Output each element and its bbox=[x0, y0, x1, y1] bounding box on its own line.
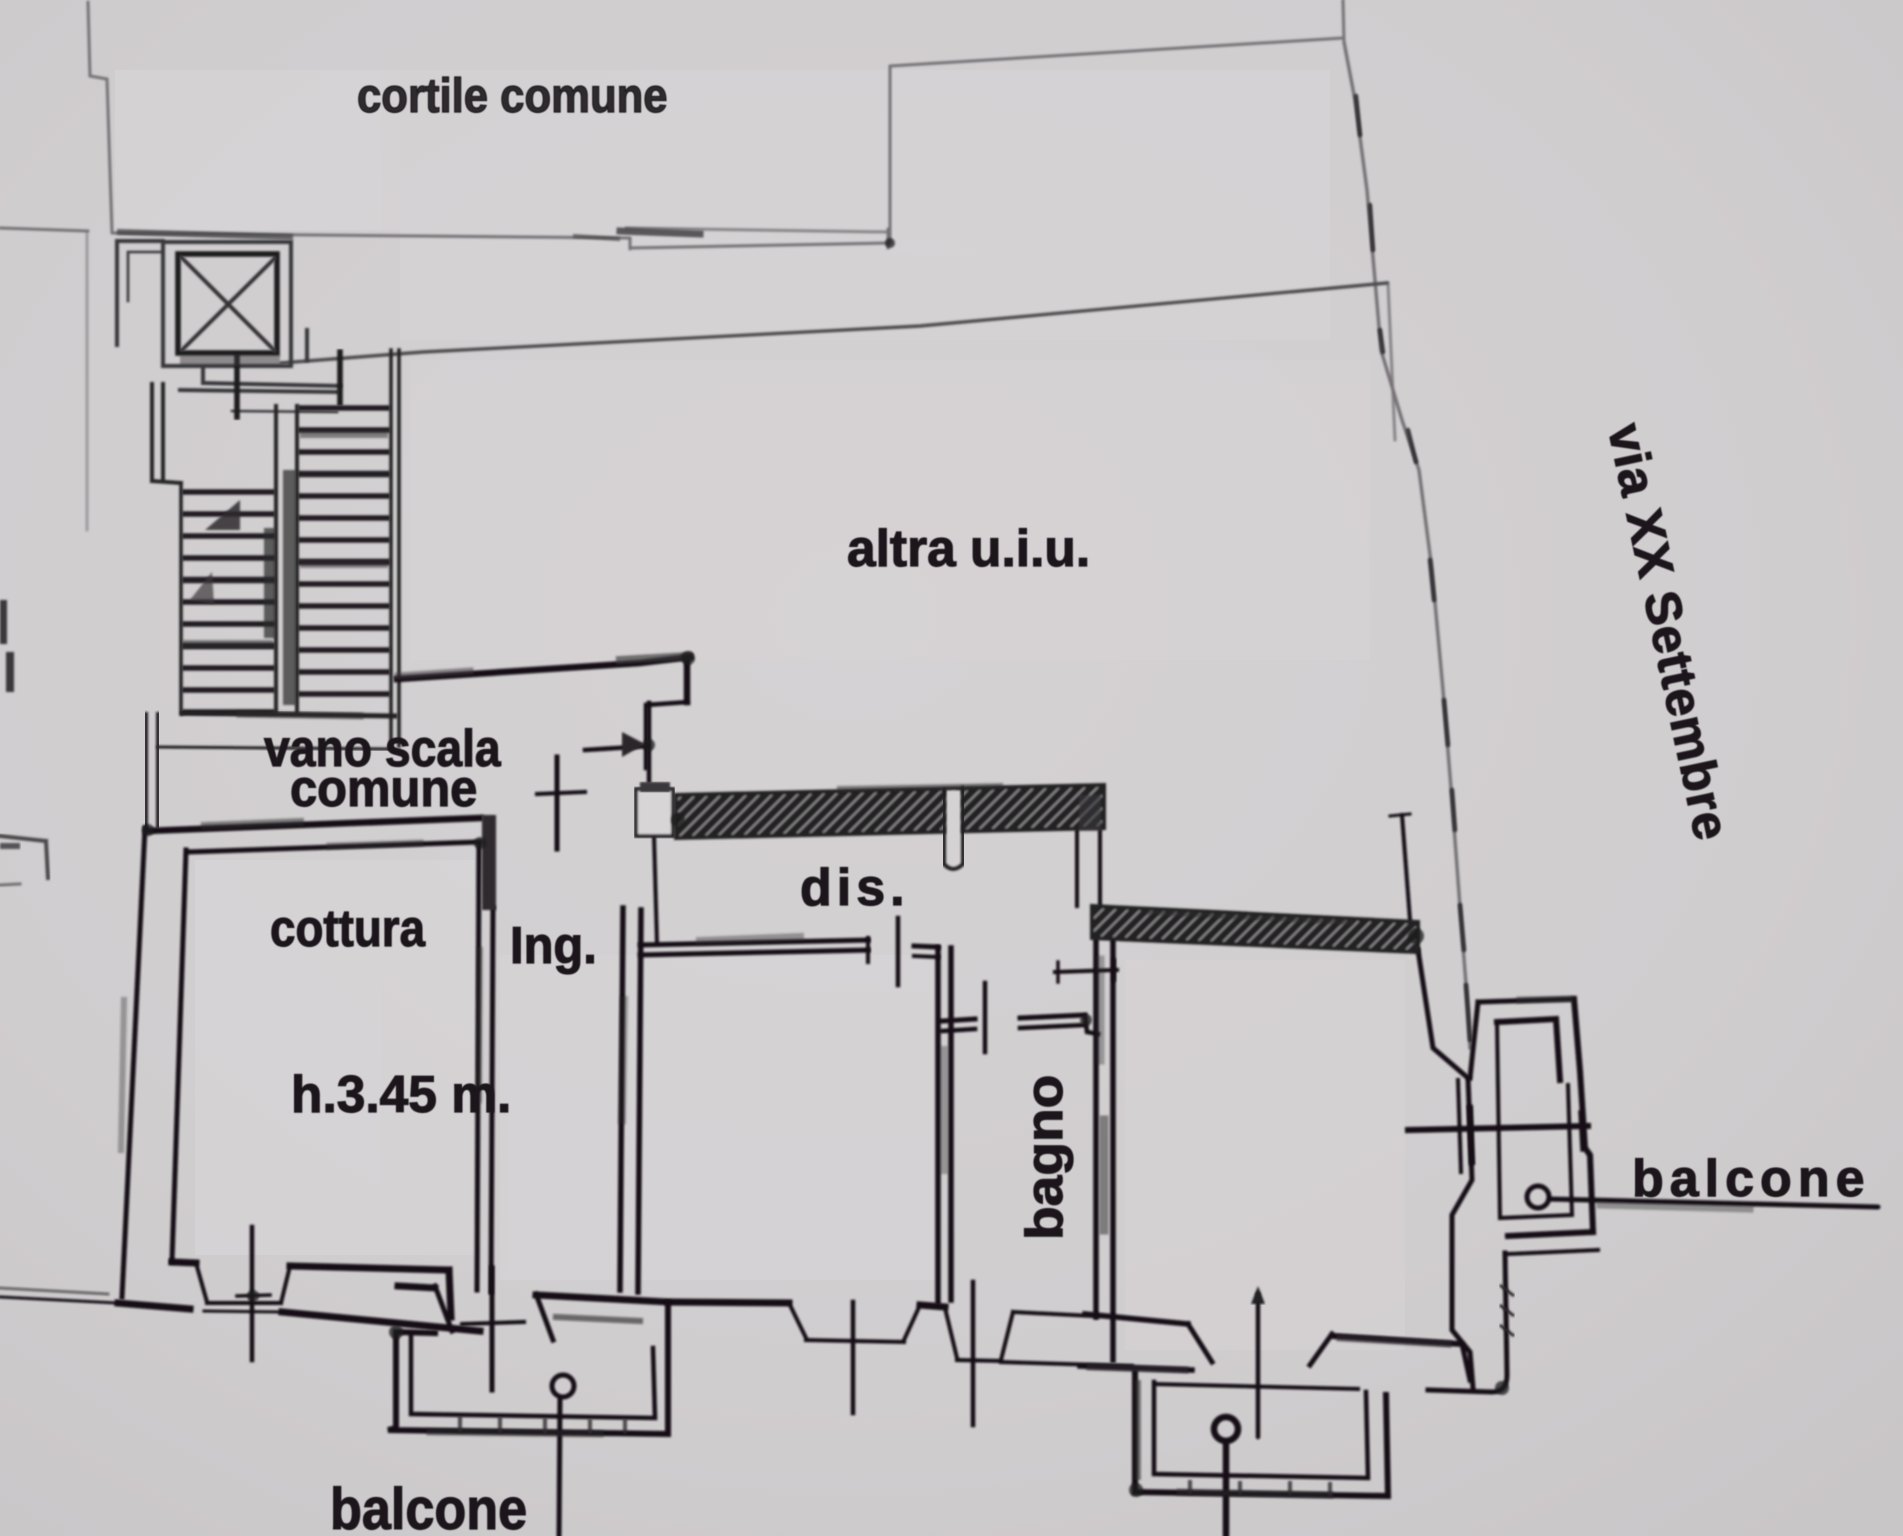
svg-text:comune: comune bbox=[290, 759, 477, 818]
svg-text:balcone: balcone bbox=[330, 1476, 527, 1536]
svg-text:h.3.45 m.: h.3.45 m. bbox=[291, 1065, 511, 1123]
svg-text:altra u.i.u.: altra u.i.u. bbox=[847, 519, 1090, 577]
svg-text:balcone: balcone bbox=[1632, 1150, 1871, 1208]
svg-text:bagno: bagno bbox=[1015, 1075, 1073, 1240]
svg-text:cortile comune: cortile comune bbox=[357, 68, 668, 122]
svg-text:dis.: dis. bbox=[800, 859, 910, 917]
svg-text:Ing.: Ing. bbox=[510, 916, 597, 975]
svg-text:cottura: cottura bbox=[270, 900, 426, 957]
